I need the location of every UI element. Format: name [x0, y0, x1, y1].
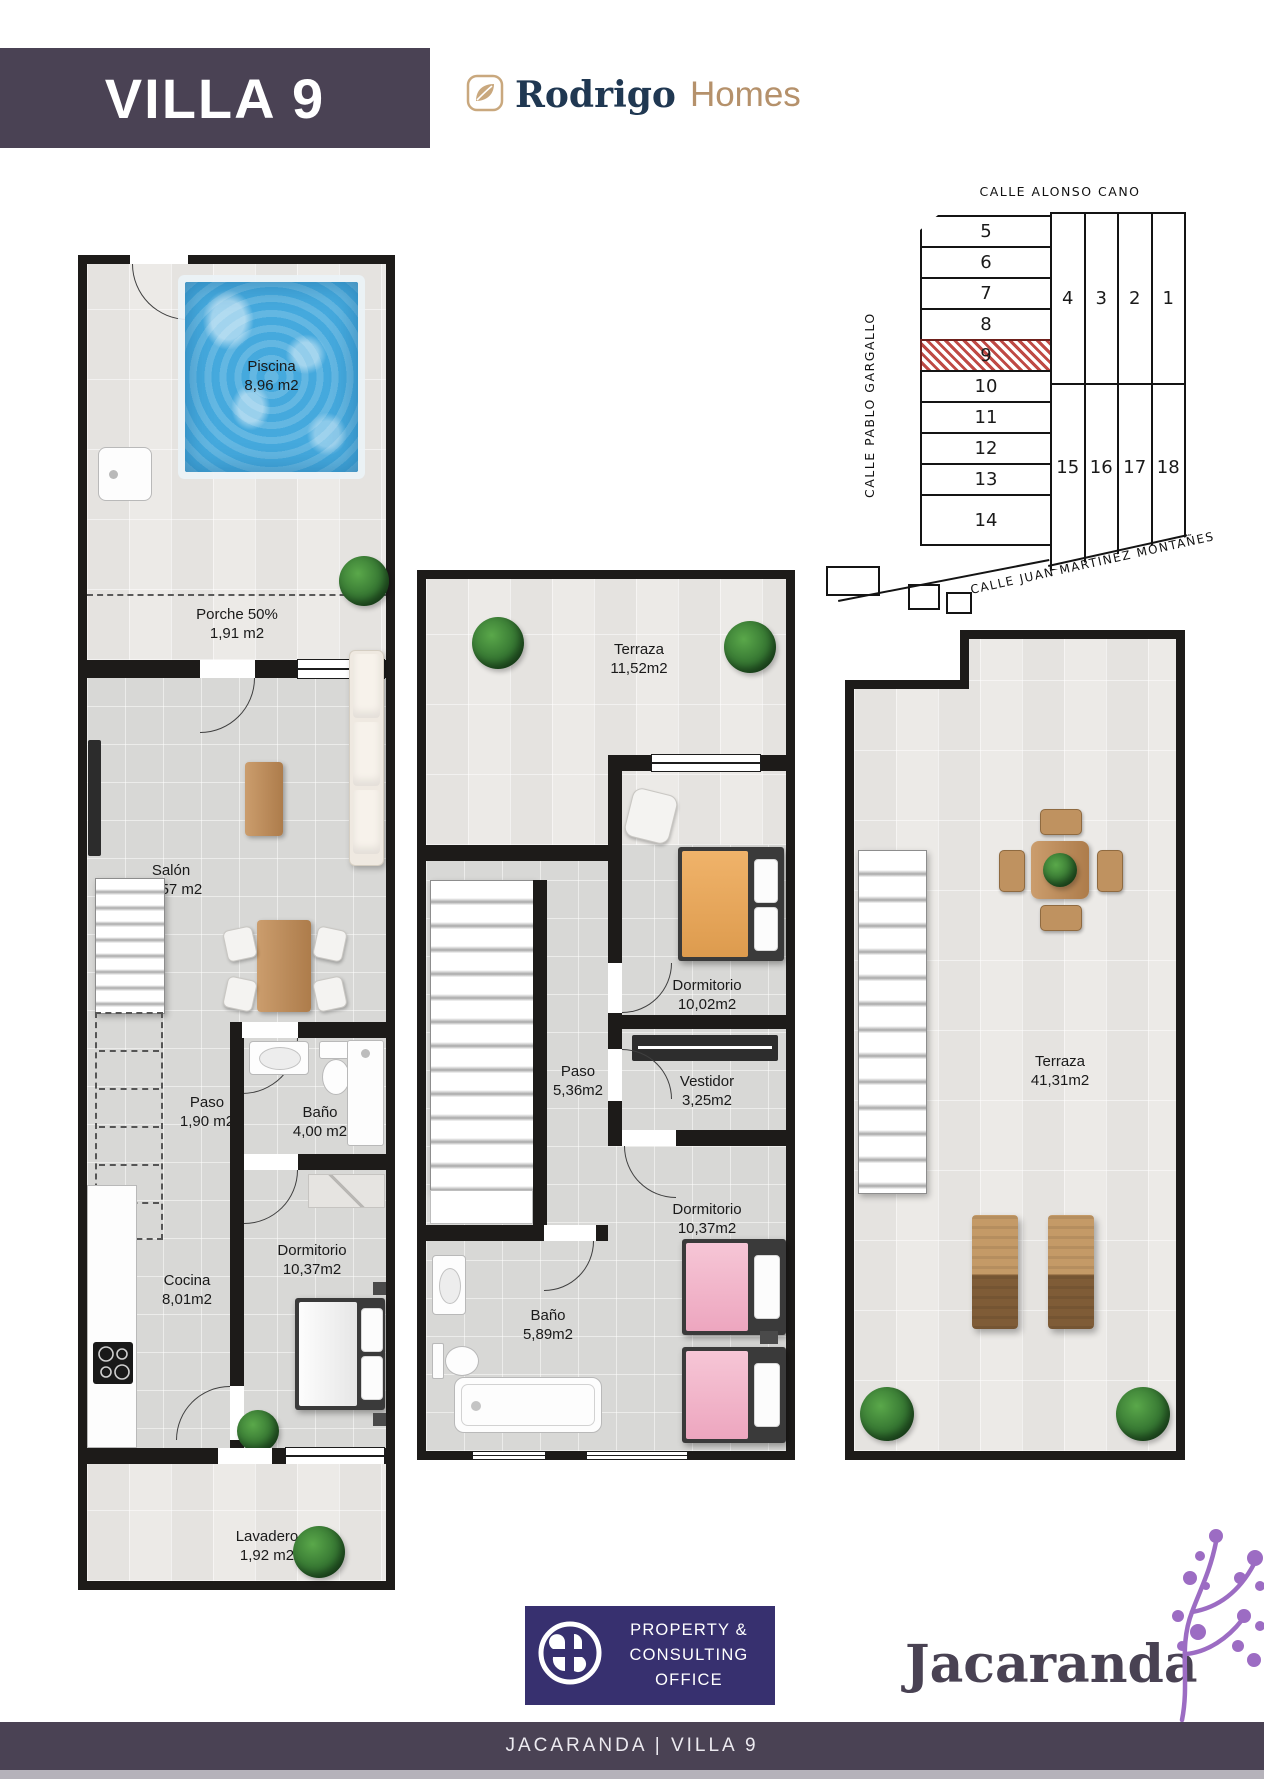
plant	[237, 1410, 279, 1452]
bathroom2-window	[472, 1451, 546, 1460]
brand-suffix: Homes	[690, 75, 801, 115]
room-label-paso1: Paso 5,36m2	[530, 1063, 626, 1101]
toilet2-bowl	[445, 1346, 479, 1376]
bed-orange	[678, 847, 784, 961]
leaf-icon	[465, 73, 505, 118]
footer-text: JACARANDA | VILLA 9	[505, 1735, 758, 1757]
plant	[293, 1526, 345, 1578]
bedroom-wall	[230, 1154, 386, 1170]
bedroom-window	[285, 1447, 385, 1465]
footer-bar: JACARANDA | VILLA 9	[0, 1722, 1264, 1770]
salon-door-arc	[200, 678, 255, 733]
nightstand	[760, 1331, 778, 1344]
plot-8: 8	[920, 308, 1052, 341]
bedroom2-top-wall	[608, 1130, 786, 1146]
stair-wall	[533, 880, 547, 1225]
plant	[1116, 1387, 1170, 1441]
room-label-cocina: Cocina 8,01m2	[135, 1272, 239, 1310]
porch-boundary-dashed	[87, 594, 386, 596]
property-consulting-logo: PROPERTY & CONSULTING OFFICE	[525, 1606, 775, 1705]
room-label-bano: Baño 4,00 m2	[265, 1104, 375, 1142]
plot-11: 11	[920, 401, 1052, 434]
room-label-porche: Porche 50% 1,91 m2	[147, 606, 327, 644]
site-structure	[826, 566, 880, 596]
room-label-piscina: Piscina 8,96 m2	[244, 358, 298, 396]
brand-name: Rodrigo	[515, 74, 676, 116]
plot-3: 3	[1084, 212, 1120, 385]
bedroom1-window	[651, 754, 761, 772]
site-structure	[908, 584, 940, 610]
dining-chair	[312, 975, 348, 1013]
pool: Piscina 8,96 m2	[185, 282, 358, 472]
bed-pink	[682, 1239, 786, 1335]
terrace-bottom-wall	[426, 845, 622, 861]
coffee-table	[245, 762, 283, 836]
plot-7: 7	[920, 277, 1052, 310]
bedroom1-side-wall	[608, 875, 622, 1015]
utility-wall	[87, 1448, 386, 1464]
dining-table	[257, 920, 311, 1012]
plant	[860, 1387, 914, 1441]
room-label-dormitorio2: Dormitorio 10,37m2	[628, 1201, 786, 1239]
bedroom1-terrace-wall	[611, 755, 786, 771]
sun-lounger	[972, 1215, 1018, 1329]
outdoor-chair	[1040, 905, 1082, 931]
bedroom2-window	[586, 1451, 688, 1460]
outdoor-chair	[999, 850, 1025, 892]
plot-6: 6	[920, 246, 1052, 279]
nightstand	[373, 1413, 386, 1426]
bathtub	[454, 1377, 602, 1433]
double-bed	[295, 1298, 385, 1410]
bathroom2-door-arc	[544, 1241, 594, 1291]
stair-landing	[430, 1190, 533, 1224]
rodrigo-homes-logo: Rodrigo Homes	[465, 72, 801, 118]
villa-title-banner: VILLA 9	[0, 48, 430, 148]
bed-pink	[682, 1347, 786, 1443]
first-floor-plan: Terraza 11,52m2 Dormitorio 10,02m2 Vesti…	[417, 570, 795, 1460]
plant	[472, 617, 524, 669]
bathroom-side-wall	[230, 1038, 244, 1154]
roof-notch-side-wall	[960, 630, 969, 689]
bathroom-wall	[230, 1022, 386, 1038]
vestidor-closet	[632, 1035, 778, 1061]
plant	[724, 621, 776, 673]
entry-door-gap	[130, 255, 188, 264]
cooktop	[93, 1342, 133, 1384]
kitchen-door-arc	[176, 1386, 230, 1440]
page-title: VILLA 9	[105, 66, 325, 131]
tv-unit	[88, 740, 101, 856]
plot-9-highlighted: 9	[920, 339, 1052, 372]
footer-edge-strip	[0, 1770, 1264, 1779]
plot-5: 5	[920, 215, 1052, 248]
plot-16: 16	[1084, 383, 1120, 571]
plot-column-left: 5 6 7 8 9 10 11 12 13 14	[920, 215, 1052, 546]
toilet-bowl	[322, 1059, 350, 1095]
street-label-top: CALLE ALONSO CANO	[865, 184, 1255, 199]
consulting-emblem-icon	[537, 1620, 603, 1691]
room-label-bano2: Baño 5,89m2	[490, 1307, 606, 1345]
plot-13: 13	[920, 463, 1052, 496]
plot-4: 4	[1050, 212, 1086, 385]
bathroom2-sink	[432, 1255, 466, 1315]
roof-terrace-plan: Terraza 41,31m2	[845, 630, 1185, 1460]
dining-chair	[222, 975, 258, 1013]
toilet2-tank	[432, 1343, 444, 1379]
flyer-page: VILLA 9 Rodrigo Homes CALLE ALONSO CANO …	[0, 0, 1264, 1779]
street-label-left: CALLE PABLO GARGALLO	[862, 240, 877, 570]
plot-14: 14	[920, 494, 1052, 546]
outdoor-shower-tray	[98, 447, 152, 501]
terrace-floor	[426, 579, 786, 845]
porch-wall	[87, 660, 386, 678]
vestidor-top-wall	[608, 1015, 786, 1029]
dining-chair	[222, 925, 258, 963]
bedroom2-door-arc	[624, 1146, 676, 1198]
consulting-text: PROPERTY & CONSULTING OFFICE	[615, 1618, 763, 1692]
plant	[339, 556, 389, 606]
table-plant	[1043, 853, 1077, 887]
wardrobe	[308, 1174, 385, 1208]
bathroom-sink	[249, 1041, 309, 1075]
plot-1: 1	[1151, 212, 1187, 385]
staircase	[95, 878, 165, 1014]
bathroom2-top-wall	[426, 1225, 608, 1241]
kitchen-counter	[87, 1185, 137, 1448]
nightstand	[373, 1282, 386, 1295]
sofa	[349, 650, 384, 866]
ground-floor-plan: Piscina 8,96 m2 Porche 50% 1,91 m2 Salón…	[78, 255, 395, 1590]
jacaranda-branch-icon	[1142, 1520, 1264, 1725]
plot-2: 2	[1117, 212, 1153, 385]
room-label-terraza: Terraza 11,52m2	[554, 641, 724, 679]
bedroom-door-arc	[244, 1170, 298, 1224]
staircase	[858, 850, 927, 1194]
plot-12: 12	[920, 432, 1052, 465]
plot-15: 15	[1050, 383, 1086, 571]
site-plan: CALLE ALONSO CANO CALLE PABLO GARGALLO 5…	[810, 160, 1260, 622]
plot-block-top-right: 4 3 2 1	[1050, 212, 1186, 385]
sun-lounger	[1048, 1215, 1094, 1329]
outdoor-chair	[1097, 850, 1123, 892]
dining-chair	[312, 925, 348, 963]
plot-10: 10	[920, 370, 1052, 403]
room-label-dormitorio: Dormitorio 10,37m2	[237, 1242, 387, 1280]
outdoor-chair	[1040, 809, 1082, 835]
roof-notch-wall	[845, 680, 969, 689]
staircase	[430, 880, 535, 1192]
room-label-roof-terraza: Terraza 41,31m2	[980, 1053, 1140, 1091]
